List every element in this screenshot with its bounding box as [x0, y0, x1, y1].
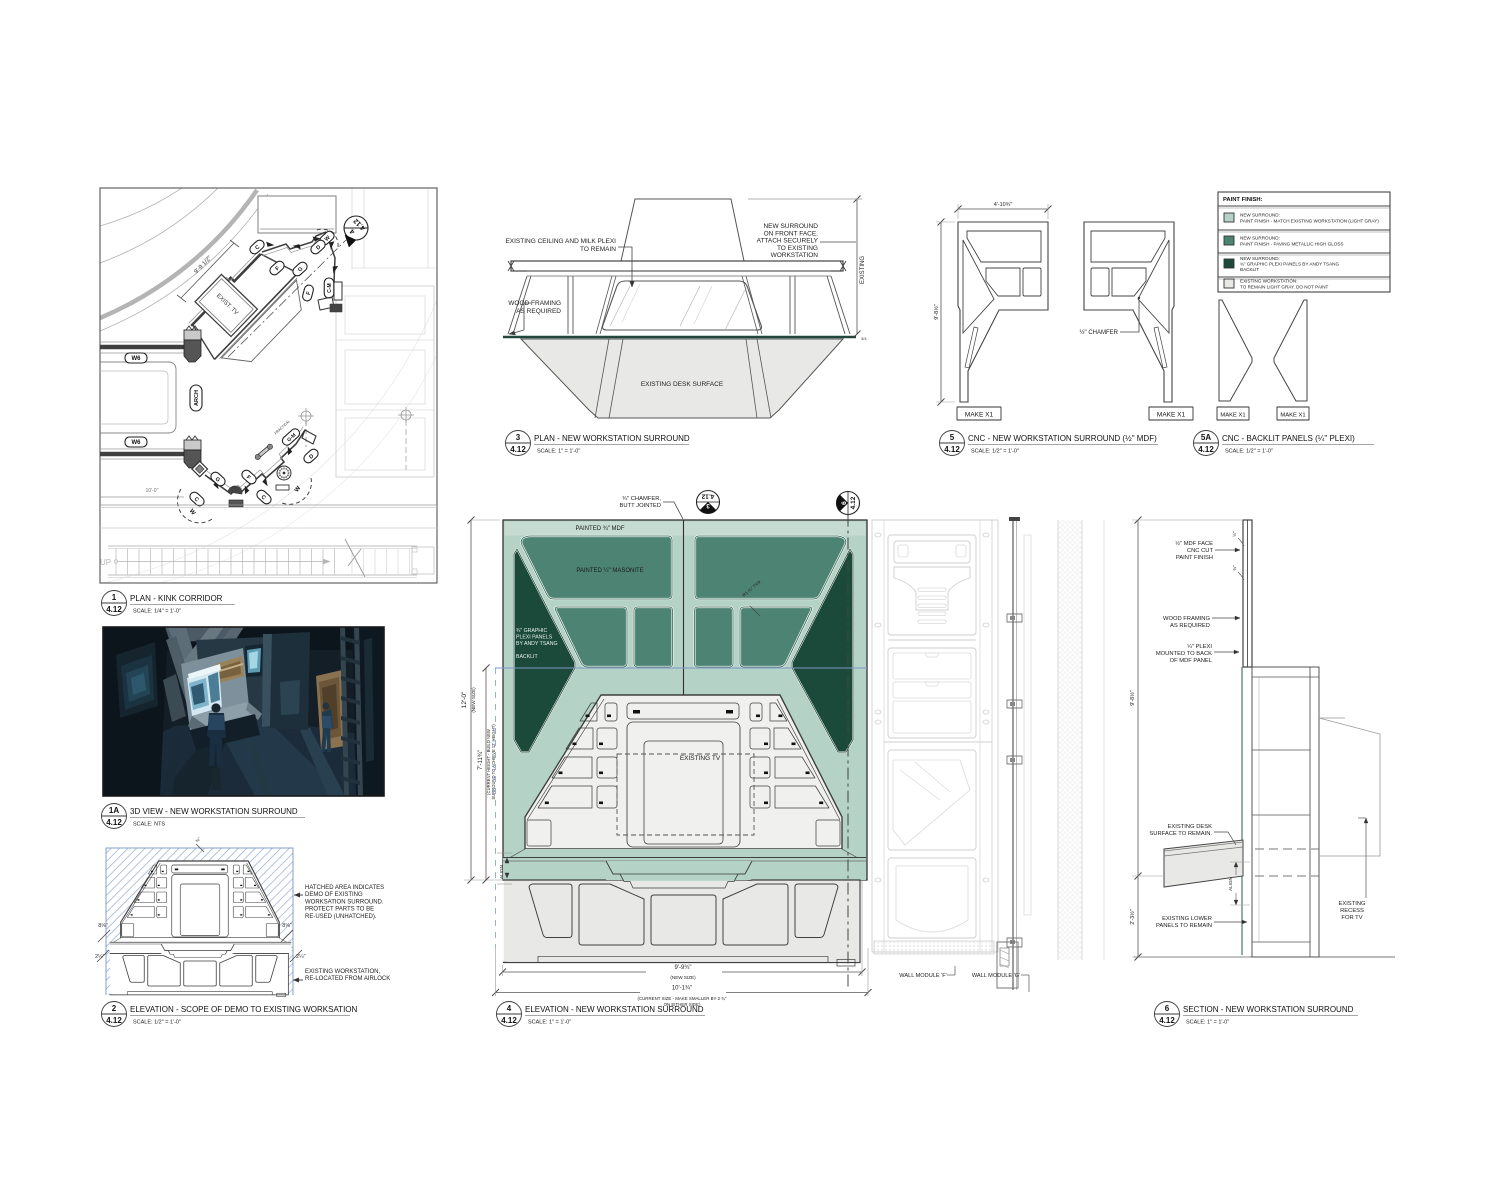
svg-text:MAKE X1: MAKE X1: [1280, 413, 1305, 419]
svg-text:EXISTING TV: EXISTING TV: [680, 755, 721, 762]
svg-text:3/4: 3/4: [861, 336, 867, 341]
svg-text:¾" GRAPHIC: ¾" GRAPHIC: [516, 628, 547, 634]
svg-text:ELEVATION - SCOPE OF DEMO TO E: ELEVATION - SCOPE OF DEMO TO EXISTING WO…: [130, 1005, 358, 1014]
svg-text:3: 3: [706, 502, 710, 509]
svg-text:¾": ¾": [1232, 565, 1237, 571]
svg-text:WOOD FRAMING: WOOD FRAMING: [508, 300, 561, 307]
svg-text:4.12: 4.12: [510, 445, 526, 454]
svg-text:TO REMAIN LIGHT GRAY. DO NOT P: TO REMAIN LIGHT GRAY. DO NOT PAINT: [1240, 284, 1329, 289]
svg-text:C-M: C-M: [327, 283, 333, 292]
svg-text:½" MDF FACE: ½" MDF FACE: [1175, 540, 1213, 547]
svg-text:AS REQUIRED: AS REQUIRED: [516, 308, 561, 315]
svg-text:2'-3½": 2'-3½": [1129, 909, 1136, 925]
svg-text:(CURRENT SIZE - MAKE SMALLER B: (CURRENT SIZE - MAKE SMALLER BY 2 ¾": [638, 996, 727, 1001]
svg-text:9'-9¾": 9'-9¾": [675, 965, 692, 971]
svg-text:BY ANDY TSANG: BY ANDY TSANG: [516, 641, 558, 647]
svg-text:BACKLIT: BACKLIT: [516, 654, 538, 660]
svg-text:PAINTED ¾" MDF: PAINTED ¾" MDF: [575, 526, 624, 532]
svg-text:7'-11¾": 7'-11¾": [478, 750, 484, 770]
svg-text:PAINT FINISH - PAVING METALLIC: PAINT FINISH - PAVING METALLIC HIGH GLOS…: [1240, 241, 1343, 246]
svg-text:SCALE: 1/2" = 1'-0": SCALE: 1/2" = 1'-0": [133, 1020, 181, 1026]
svg-text:RECESS: RECESS: [1340, 908, 1364, 914]
svg-text:SCALE: 1" = 1'-0": SCALE: 1" = 1'-0": [528, 1020, 571, 1026]
svg-text:6: 6: [1165, 1004, 1170, 1013]
svg-text:EXISTING DESK SURFACE: EXISTING DESK SURFACE: [641, 381, 724, 388]
svg-text:8⅝": 8⅝": [98, 923, 108, 929]
svg-text:MAKE X1: MAKE X1: [1220, 413, 1245, 419]
svg-text:RE-LOCATED FROM AIRLOCK: RE-LOCATED FROM AIRLOCK: [305, 976, 390, 982]
svg-text:TO EXISTING: TO EXISTING: [777, 245, 818, 252]
svg-text:3D VIEW - NEW WORKSTATION SURR: 3D VIEW - NEW WORKSTATION SURROUND: [130, 807, 298, 816]
svg-text:ARCH: ARCH: [194, 390, 200, 406]
svg-text:MOUNTED TO BACK: MOUNTED TO BACK: [1156, 651, 1212, 657]
svg-text:SCALE: NTS: SCALE: NTS: [133, 822, 165, 828]
svg-text:PLAN - KINK CORRIDOR: PLAN - KINK CORRIDOR: [130, 594, 223, 603]
svg-text:4.12: 4.12: [106, 1016, 122, 1025]
svg-text:ON FRONT FACE.: ON FRONT FACE.: [764, 230, 819, 237]
svg-text:HATCHED AREA INDICATES: HATCHED AREA INDICATES: [305, 885, 384, 891]
svg-text:NEW SURROUND:: NEW SURROUND:: [1240, 213, 1280, 218]
svg-text:8⅝": 8⅝": [282, 923, 292, 929]
svg-text:W: W: [188, 508, 196, 516]
svg-text:10'-1¾": 10'-1¾": [672, 986, 692, 992]
svg-text:EXISTING DESK: EXISTING DESK: [1168, 824, 1213, 830]
svg-text:¾" CHAMFER,: ¾" CHAMFER,: [622, 496, 661, 502]
svg-text:ALIGN: ALIGN: [1228, 877, 1233, 891]
svg-text:3: 3: [516, 433, 521, 442]
svg-text:2¼": 2¼": [296, 954, 306, 960]
svg-text:OF MDF PANEL: OF MDF PANEL: [1170, 658, 1213, 664]
svg-text:AS REQUIRED: AS REQUIRED: [1170, 623, 1210, 629]
svg-text:SCALE: 1/2" = 1'-0": SCALE: 1/2" = 1'-0": [1225, 449, 1273, 455]
svg-text:SURFACE TO REMAIN.: SURFACE TO REMAIN.: [1149, 831, 1212, 837]
svg-text:½": ½": [1231, 531, 1237, 537]
svg-text:9'-8½": 9'-8½": [1129, 690, 1136, 706]
svg-text:BUTT JOINTED: BUTT JOINTED: [620, 503, 661, 509]
svg-text:5: 5: [950, 433, 955, 442]
svg-text:SCALE: 1" = 1'-0": SCALE: 1" = 1'-0": [1186, 1020, 1229, 1026]
svg-text:SECTION - NEW WORKSTATION SURR: SECTION - NEW WORKSTATION SURROUND: [1183, 1005, 1354, 1014]
svg-text:EXISTING CEILING AND MILK PLEX: EXISTING CEILING AND MILK PLEXI: [505, 238, 616, 245]
svg-text:RE-USED (UNHATCHED).: RE-USED (UNHATCHED).: [305, 914, 377, 920]
svg-text:4.12: 4.12: [1198, 445, 1214, 454]
svg-text:PAINT FINISH:: PAINT FINISH:: [1223, 197, 1263, 203]
svg-text:9'-8½": 9'-8½": [933, 304, 940, 320]
svg-text:FOR TV: FOR TV: [1341, 915, 1362, 921]
svg-text:TO REMAIN: TO REMAIN: [580, 246, 616, 253]
svg-text:EXISTING: EXISTING: [1338, 901, 1366, 907]
svg-text:⅜": ⅜": [194, 836, 202, 844]
svg-text:WOOD FRAMING: WOOD FRAMING: [1163, 616, 1211, 622]
svg-text:2: 2: [112, 1004, 117, 1013]
svg-text:WALL MODULE 'F': WALL MODULE 'F': [899, 973, 946, 979]
svg-text:PAINTED ¼" MASONITE: PAINTED ¼" MASONITE: [576, 568, 643, 574]
svg-text:SURROUND TO ACHIEVE 12' HEIGHT: SURROUND TO ACHIEVE 12' HEIGHT): [491, 724, 496, 800]
svg-text:CNC - NEW WORKSTATION SURROUND: CNC - NEW WORKSTATION SURROUND (½" MDF): [968, 434, 1157, 443]
svg-text:10'-0": 10'-0": [146, 488, 159, 494]
svg-text:PANELS TO REMAIN: PANELS TO REMAIN: [1156, 923, 1212, 929]
svg-text:4'-10¾": 4'-10¾": [994, 202, 1013, 208]
svg-text:4: 4: [507, 1004, 512, 1013]
svg-text:WALL MODULE 'G': WALL MODULE 'G': [972, 973, 1020, 979]
svg-text:EXISTING WORKSTATION,: EXISTING WORKSTATION,: [305, 969, 380, 975]
svg-text:SCALE: 1/4" = 1'-0": SCALE: 1/4" = 1'-0": [133, 609, 181, 615]
svg-text:PLEXI PANELS: PLEXI PANELS: [516, 635, 553, 641]
svg-text:ATTACH SECURELY: ATTACH SECURELY: [757, 238, 819, 245]
svg-text:¼" PLEXI: ¼" PLEXI: [1187, 644, 1212, 650]
svg-text:ELEVATION - NEW WORKSTATION SU: ELEVATION - NEW WORKSTATION SURROUND: [525, 1005, 704, 1014]
svg-text:4.12: 4.12: [106, 818, 122, 827]
svg-text:4.12: 4.12: [944, 445, 960, 454]
svg-text:DEMO OF EXISTING: DEMO OF EXISTING: [305, 892, 363, 898]
svg-text:(NEW SIZE): (NEW SIZE): [670, 975, 696, 980]
svg-text:EXISTING WORKSTATION:: EXISTING WORKSTATION:: [1240, 279, 1298, 284]
svg-text:CNC CUT: CNC CUT: [1187, 548, 1214, 554]
svg-text:PLAN - NEW WORKSTATION SURROUN: PLAN - NEW WORKSTATION SURROUND: [534, 434, 690, 443]
svg-text:4.12: 4.12: [701, 493, 714, 500]
svg-text:EXISTING LOWER: EXISTING LOWER: [1162, 916, 1212, 922]
svg-text:W: W: [294, 485, 302, 493]
svg-text:W6: W6: [132, 356, 142, 362]
svg-text:2¼": 2¼": [95, 954, 105, 960]
svg-text:PAINT FINISH - MATCH EXISTING: PAINT FINISH - MATCH EXISTING WORKSTATIO…: [1240, 218, 1379, 223]
svg-text:12'-0": 12'-0": [461, 691, 468, 708]
svg-text:5A: 5A: [1201, 433, 1211, 442]
svg-text:½" CHAMFER: ½" CHAMFER: [1080, 329, 1119, 336]
svg-text:UP: UP: [100, 558, 111, 567]
svg-text:NEW SURROUND:: NEW SURROUND:: [1240, 236, 1280, 241]
svg-text:4.12: 4.12: [501, 1016, 517, 1025]
svg-text:MAKE X1: MAKE X1: [965, 412, 994, 419]
svg-text:ALIGN: ALIGN: [499, 865, 504, 879]
svg-text:4.12: 4.12: [850, 496, 857, 509]
svg-text:W6: W6: [132, 440, 142, 446]
svg-text:PAINT FINISH: PAINT FINISH: [1176, 555, 1213, 561]
svg-text:¾" GRAPHIC PLEXI PANELS BY AND: ¾" GRAPHIC PLEXI PANELS BY ANDY TSANG: [1240, 262, 1339, 267]
svg-text:SCALE: 1" = 1'-0": SCALE: 1" = 1'-0": [537, 449, 580, 455]
svg-text:WORKSTATION: WORKSTATION: [771, 252, 819, 259]
svg-text:4.12: 4.12: [106, 605, 122, 614]
svg-text:NEW SURROUND: NEW SURROUND: [763, 223, 818, 230]
svg-text:NEW SURROUND:: NEW SURROUND:: [1240, 256, 1280, 261]
svg-text:MAKE X1: MAKE X1: [1157, 412, 1186, 419]
svg-text:(NEW SIZE): (NEW SIZE): [471, 687, 476, 713]
svg-text:SCALE: 1/2" = 1'-0": SCALE: 1/2" = 1'-0": [971, 449, 1019, 455]
svg-text:EXISTING: EXISTING: [860, 256, 866, 284]
svg-text:WORKSATION SURROUND.: WORKSATION SURROUND.: [305, 899, 384, 905]
svg-text:CNC - BACKLIT PANELS (¼" PLEXI: CNC - BACKLIT PANELS (¼" PLEXI): [1222, 434, 1355, 443]
svg-text:1: 1: [112, 593, 117, 602]
svg-text:PROTECT PARTS TO BE: PROTECT PARTS TO BE: [305, 907, 374, 913]
svg-text:6: 6: [841, 501, 848, 505]
svg-text:BACKLIT: BACKLIT: [1240, 267, 1259, 272]
svg-text:1A: 1A: [109, 806, 119, 815]
svg-text:4.12: 4.12: [1159, 1016, 1175, 1025]
